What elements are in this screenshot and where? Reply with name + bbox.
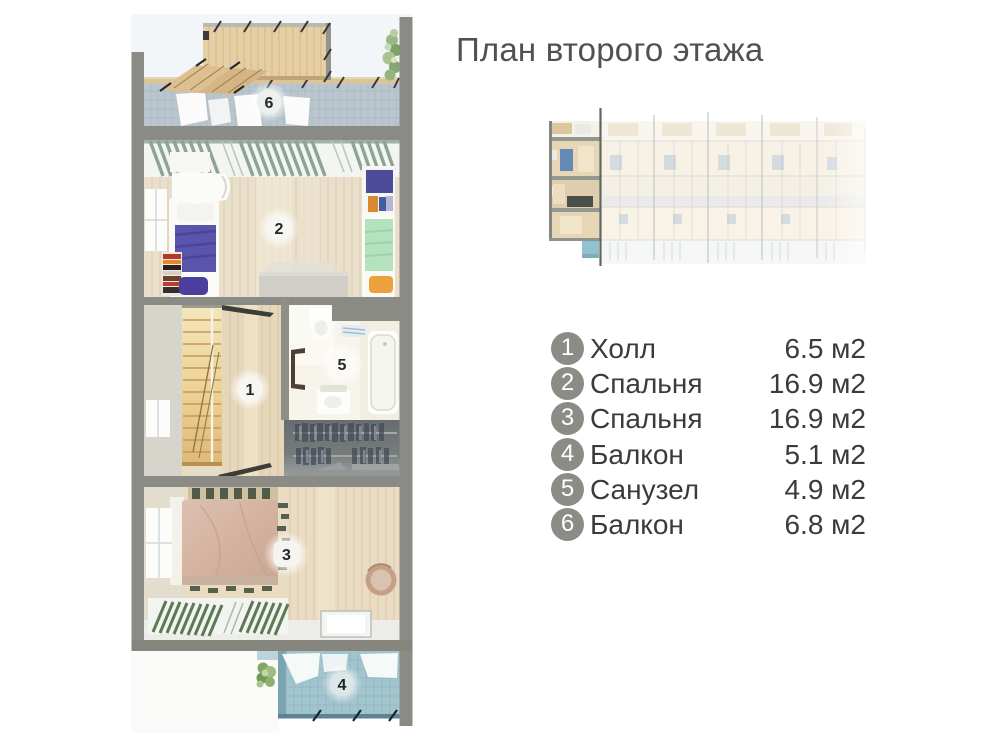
svg-text:1: 1 [246, 382, 255, 399]
svg-text:2: 2 [275, 221, 284, 238]
svg-text:5: 5 [338, 357, 347, 374]
svg-text:4: 4 [338, 677, 347, 694]
svg-text:3: 3 [282, 547, 291, 564]
svg-text:6: 6 [265, 95, 274, 112]
